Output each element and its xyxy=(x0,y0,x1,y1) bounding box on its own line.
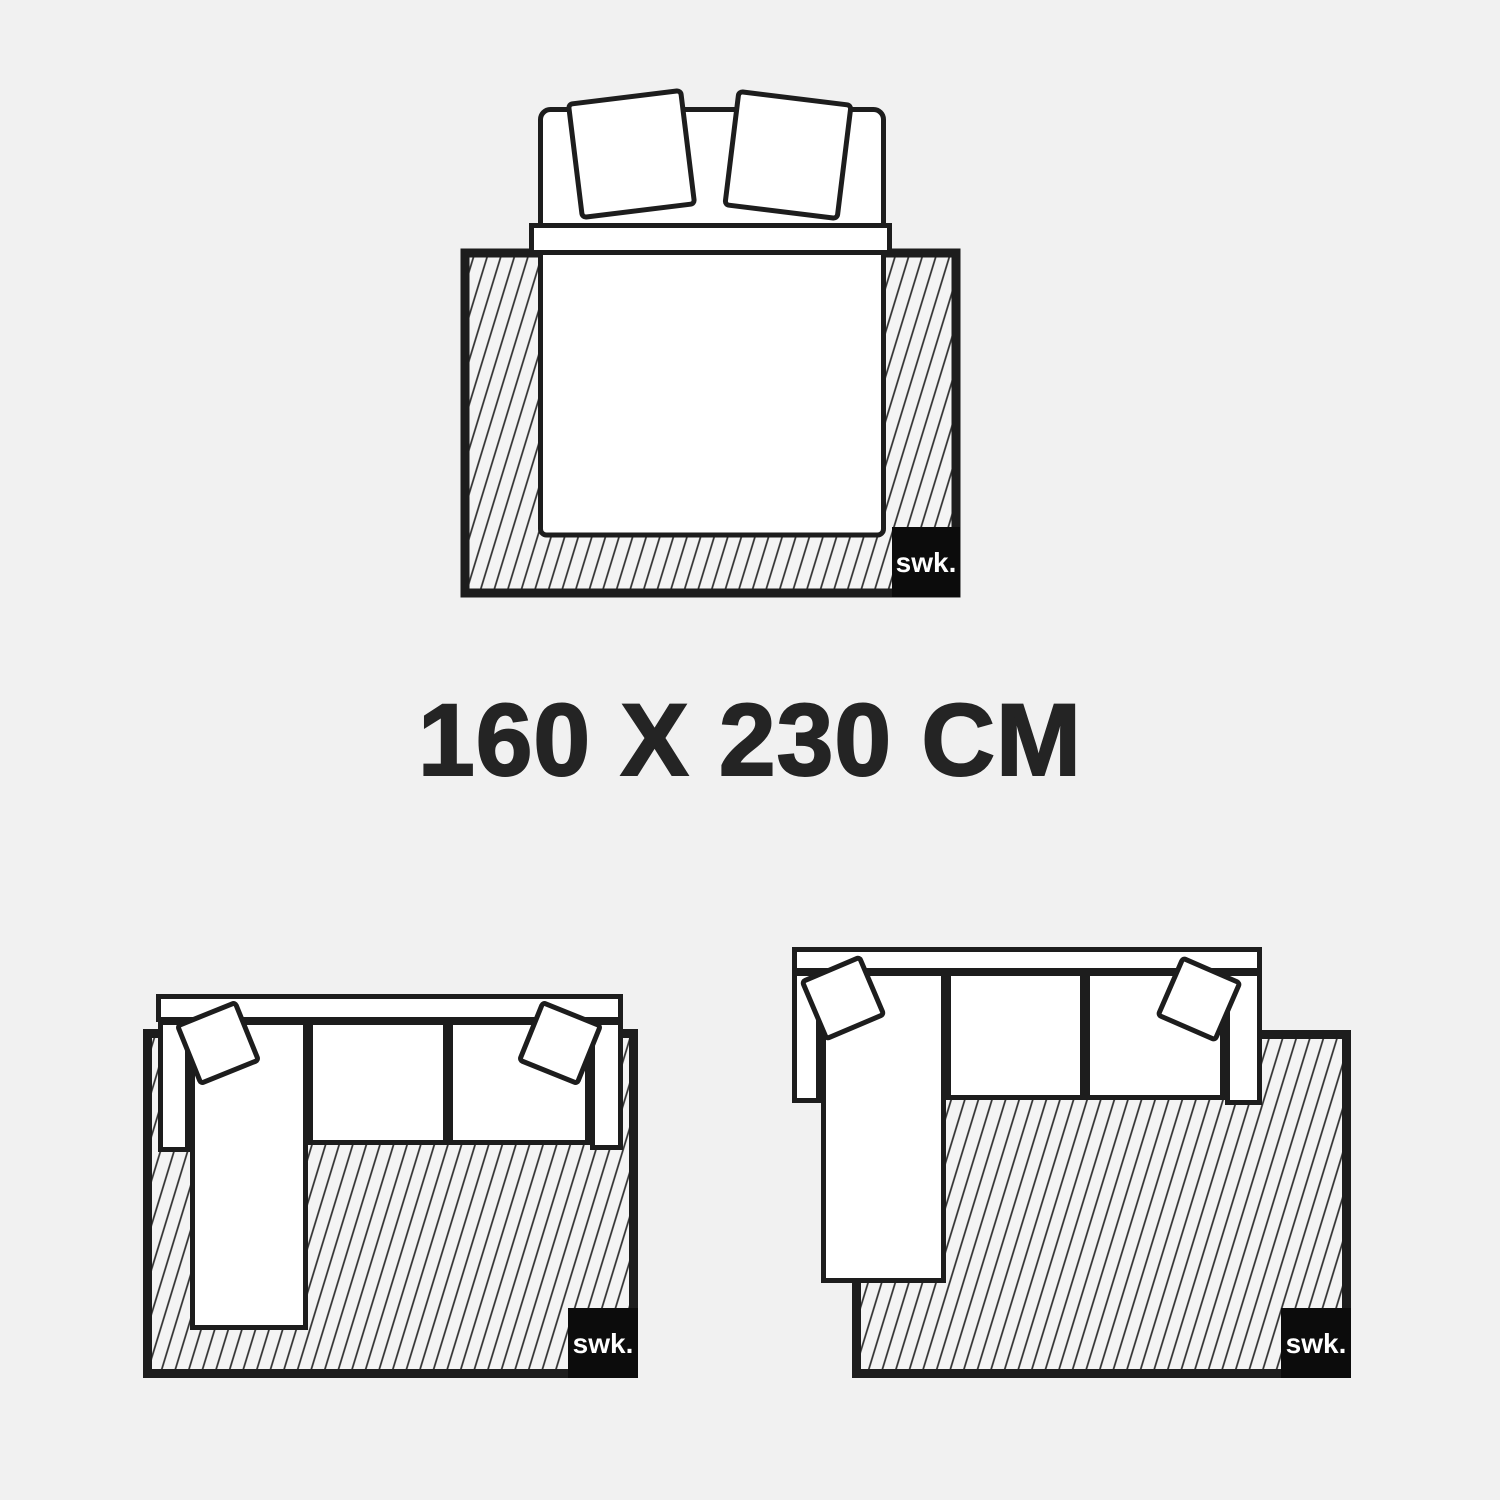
corner-sofa-top-view-rug-offset-icon: swk. xyxy=(780,938,1360,1383)
double-bed-top-view-on-rug-icon: swk. xyxy=(455,85,965,605)
bed-duvet-icon xyxy=(541,235,884,535)
brand-badge: swk. xyxy=(892,527,960,597)
brand-badge: swk. xyxy=(568,1308,638,1378)
brand-logo-text: swk. xyxy=(573,1328,634,1359)
pillow-icon xyxy=(725,92,851,219)
bed-sheet-fold-icon xyxy=(532,226,890,253)
sofa-seat-cushion-icon xyxy=(311,1023,446,1143)
pillow-icon xyxy=(568,91,694,218)
brand-logo-text: swk. xyxy=(1286,1328,1347,1359)
brand-badge: swk. xyxy=(1281,1308,1351,1378)
rug-size-infographic: swk. 160 X 230 CM swk. xyxy=(0,0,1500,1500)
sofa-seat-cushion-icon xyxy=(949,974,1083,1098)
rug-size-title: 160 X 230 CM xyxy=(0,689,1500,791)
brand-logo-text: swk. xyxy=(896,547,957,578)
corner-sofa-top-view-on-rug-icon: swk. xyxy=(133,964,653,1384)
